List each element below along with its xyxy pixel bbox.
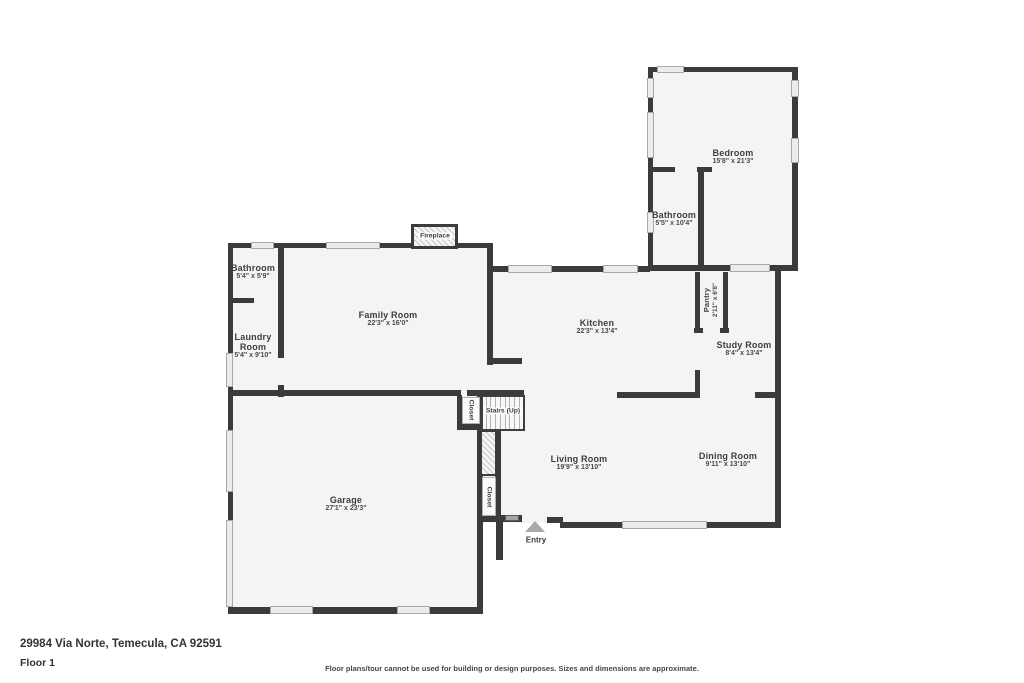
closet-upper-label: Closet bbox=[468, 400, 475, 421]
window bbox=[791, 80, 799, 97]
wall-segment bbox=[313, 607, 397, 614]
wall-segment bbox=[792, 67, 798, 80]
wall-segment bbox=[694, 328, 703, 333]
window bbox=[508, 265, 552, 273]
room-name: Kitchen bbox=[576, 318, 617, 328]
room-dimensions: 22'3" x 16'0" bbox=[359, 320, 418, 328]
wall-segment bbox=[430, 607, 483, 614]
window bbox=[251, 242, 274, 249]
disclaimer-text: Floor plans/tour cannot be used for buil… bbox=[0, 664, 1024, 673]
room-label-dining-room: Dining Room 9'11" x 13'10" bbox=[699, 451, 757, 469]
room-name: Pantry bbox=[702, 283, 712, 317]
room-label-study-room: Study Room 8'4" x 13'4" bbox=[717, 340, 772, 358]
room-dimensions: 9'11" x 13'10" bbox=[699, 461, 757, 469]
stairs-up-label: Stairs (Up) bbox=[484, 407, 522, 416]
room-dimensions: 19'9" x 13'10" bbox=[551, 464, 608, 472]
wall-segment bbox=[487, 243, 493, 365]
wall-segment bbox=[648, 167, 675, 172]
address-text: 29984 Via Norte, Temecula, CA 92591 bbox=[20, 638, 222, 650]
wall-segment bbox=[684, 67, 798, 72]
room-dimensions: 5'4" x 9'10" bbox=[228, 352, 278, 360]
room-name: Garage bbox=[325, 495, 366, 505]
window bbox=[270, 606, 313, 614]
wall-segment bbox=[228, 243, 251, 248]
entry-label: Entry bbox=[526, 536, 546, 545]
room-name: Study Room bbox=[717, 340, 772, 350]
wall-segment bbox=[695, 272, 700, 331]
room-dimensions: 5'4" x 5'9" bbox=[231, 273, 275, 281]
room-label-living-room: Living Room 19'9" x 13'10" bbox=[551, 454, 608, 472]
wall-segment bbox=[552, 266, 603, 272]
closet-lower-label: Closet bbox=[486, 487, 493, 508]
floor-plan-canvas: Bedroom 15'8" x 21'3" Bathroom 5'5" x 10… bbox=[0, 0, 1024, 683]
wall-segment bbox=[792, 97, 798, 138]
window bbox=[326, 242, 380, 249]
room-label-bathroom-main: Bathroom 5'4" x 5'9" bbox=[231, 263, 275, 281]
window bbox=[603, 265, 638, 273]
wall-segment bbox=[720, 328, 729, 333]
wall-segment bbox=[755, 392, 781, 398]
wall-segment bbox=[792, 163, 798, 270]
window bbox=[647, 112, 654, 158]
wall-segment bbox=[278, 385, 284, 397]
wall-segment bbox=[228, 607, 270, 614]
window bbox=[226, 430, 233, 492]
wall-segment bbox=[648, 265, 730, 271]
room-name: Dining Room bbox=[699, 451, 757, 461]
window bbox=[657, 66, 684, 73]
window bbox=[730, 264, 770, 272]
room-dimensions: 27'1" x 23'3" bbox=[325, 505, 366, 513]
wall-segment bbox=[487, 358, 522, 364]
wall-segment bbox=[723, 272, 728, 331]
room-label-pantry: Pantry 2'11" x 6'8" bbox=[702, 283, 720, 317]
room-label-bathroom-upper: Bathroom 5'5" x 10'4" bbox=[652, 210, 696, 228]
room-name: Family Room bbox=[359, 310, 418, 320]
wall-segment bbox=[698, 167, 704, 270]
room-dimensions: 8'4" x 13'4" bbox=[717, 350, 772, 358]
room-name: Laundry Room bbox=[228, 332, 278, 352]
room-name: Living Room bbox=[551, 454, 608, 464]
window bbox=[397, 606, 430, 614]
room-name: Bedroom bbox=[712, 148, 753, 158]
wall-segment bbox=[278, 243, 284, 358]
window bbox=[622, 521, 707, 529]
wall-segment bbox=[617, 392, 700, 398]
window bbox=[647, 78, 654, 98]
room-label-garage: Garage 27'1" x 23'3" bbox=[325, 495, 366, 513]
wall-segment bbox=[228, 298, 254, 303]
entry-door bbox=[505, 515, 519, 521]
wall-segment bbox=[648, 67, 657, 72]
room-label-bedroom: Bedroom 15'8" x 21'3" bbox=[712, 148, 753, 166]
wall-segment bbox=[707, 522, 778, 528]
wall-segment bbox=[695, 370, 700, 398]
fireplace-label: Fireplace bbox=[418, 232, 452, 241]
room-dimensions: 5'5" x 10'4" bbox=[652, 220, 696, 228]
floor-area bbox=[490, 266, 778, 397]
room-dimensions: 15'8" x 21'3" bbox=[712, 158, 753, 166]
entry-arrow-icon bbox=[525, 521, 545, 532]
wall-segment bbox=[560, 522, 622, 528]
room-dimensions: 2'11" x 6'8" bbox=[712, 283, 720, 317]
wall-segment bbox=[490, 266, 508, 272]
room-name: Bathroom bbox=[231, 263, 275, 273]
wall-segment bbox=[228, 492, 233, 520]
window bbox=[226, 520, 233, 607]
room-label-laundry-room: Laundry Room 5'4" x 9'10" bbox=[228, 332, 278, 360]
room-label-family-room: Family Room 22'3" x 16'0" bbox=[359, 310, 418, 328]
wall-segment bbox=[648, 98, 653, 112]
room-label-kitchen: Kitchen 22'3" x 13'4" bbox=[576, 318, 617, 336]
room-dimensions: 22'3" x 13'4" bbox=[576, 328, 617, 336]
wall-segment bbox=[228, 390, 461, 396]
window bbox=[791, 138, 799, 163]
room-name: Bathroom bbox=[652, 210, 696, 220]
wall-segment bbox=[496, 522, 503, 560]
chase-hatch bbox=[480, 430, 497, 476]
